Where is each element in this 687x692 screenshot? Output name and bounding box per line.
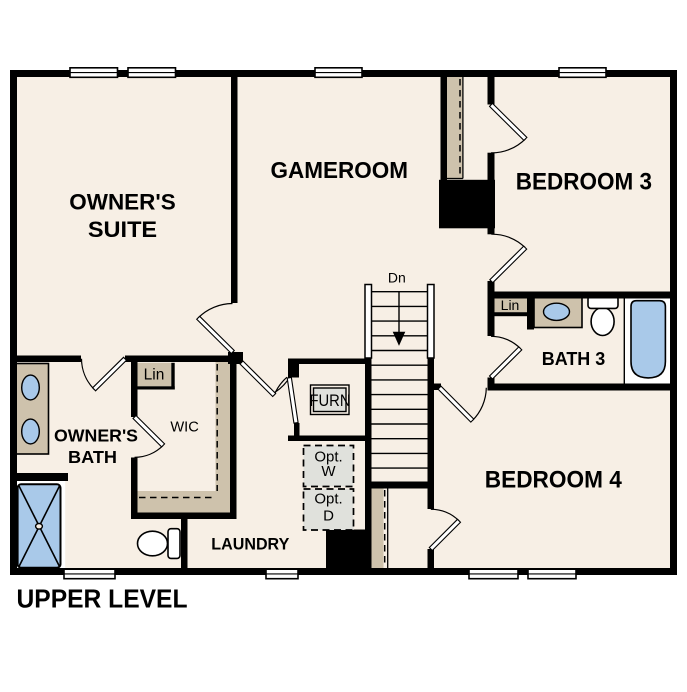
- svg-text:GAMEROOM: GAMEROOM: [271, 157, 409, 183]
- svg-text:Lin: Lin: [144, 366, 165, 383]
- svg-text:D: D: [323, 508, 334, 525]
- svg-text:Opt.: Opt.: [314, 491, 342, 508]
- svg-text:WIC: WIC: [170, 419, 199, 435]
- svg-text:Dn: Dn: [388, 270, 406, 286]
- svg-text:FURN: FURN: [310, 391, 351, 410]
- svg-text:SUITE: SUITE: [88, 217, 157, 242]
- svg-text:Lin: Lin: [501, 297, 520, 313]
- svg-text:LAUNDRY: LAUNDRY: [211, 536, 289, 554]
- svg-text:BATH 3: BATH 3: [542, 349, 606, 369]
- svg-text:W: W: [321, 463, 336, 480]
- svg-text:OWNER'S: OWNER'S: [54, 425, 138, 445]
- svg-text:UPPER LEVEL: UPPER LEVEL: [17, 584, 188, 614]
- svg-text:BEDROOM 3: BEDROOM 3: [516, 169, 652, 196]
- svg-text:BEDROOM 4: BEDROOM 4: [485, 467, 623, 494]
- svg-text:BATH: BATH: [68, 447, 117, 467]
- svg-text:OWNER'S: OWNER'S: [69, 190, 175, 215]
